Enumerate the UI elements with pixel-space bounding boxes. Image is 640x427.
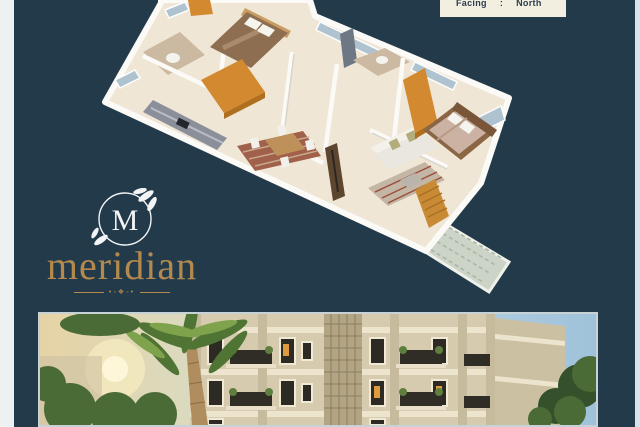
monogram: M [112,204,139,237]
brochure-page: Facing : North [0,0,640,427]
ornament-glyphs: •◦❖◦• [109,289,135,296]
wordmark-ornament: •◦❖◦• [16,289,228,296]
building-facade [190,314,565,425]
brand-wordmark: meridian [16,246,228,286]
left-edge-bar [0,0,14,427]
building-photo [38,312,598,427]
ornament-line [74,292,104,293]
ornament-line [140,292,170,293]
right-edge-bar [635,0,640,427]
washbasin [376,56,388,64]
sun [102,356,128,382]
toilet [166,53,180,63]
building-render [40,314,596,425]
facing-value: North [516,0,542,8]
